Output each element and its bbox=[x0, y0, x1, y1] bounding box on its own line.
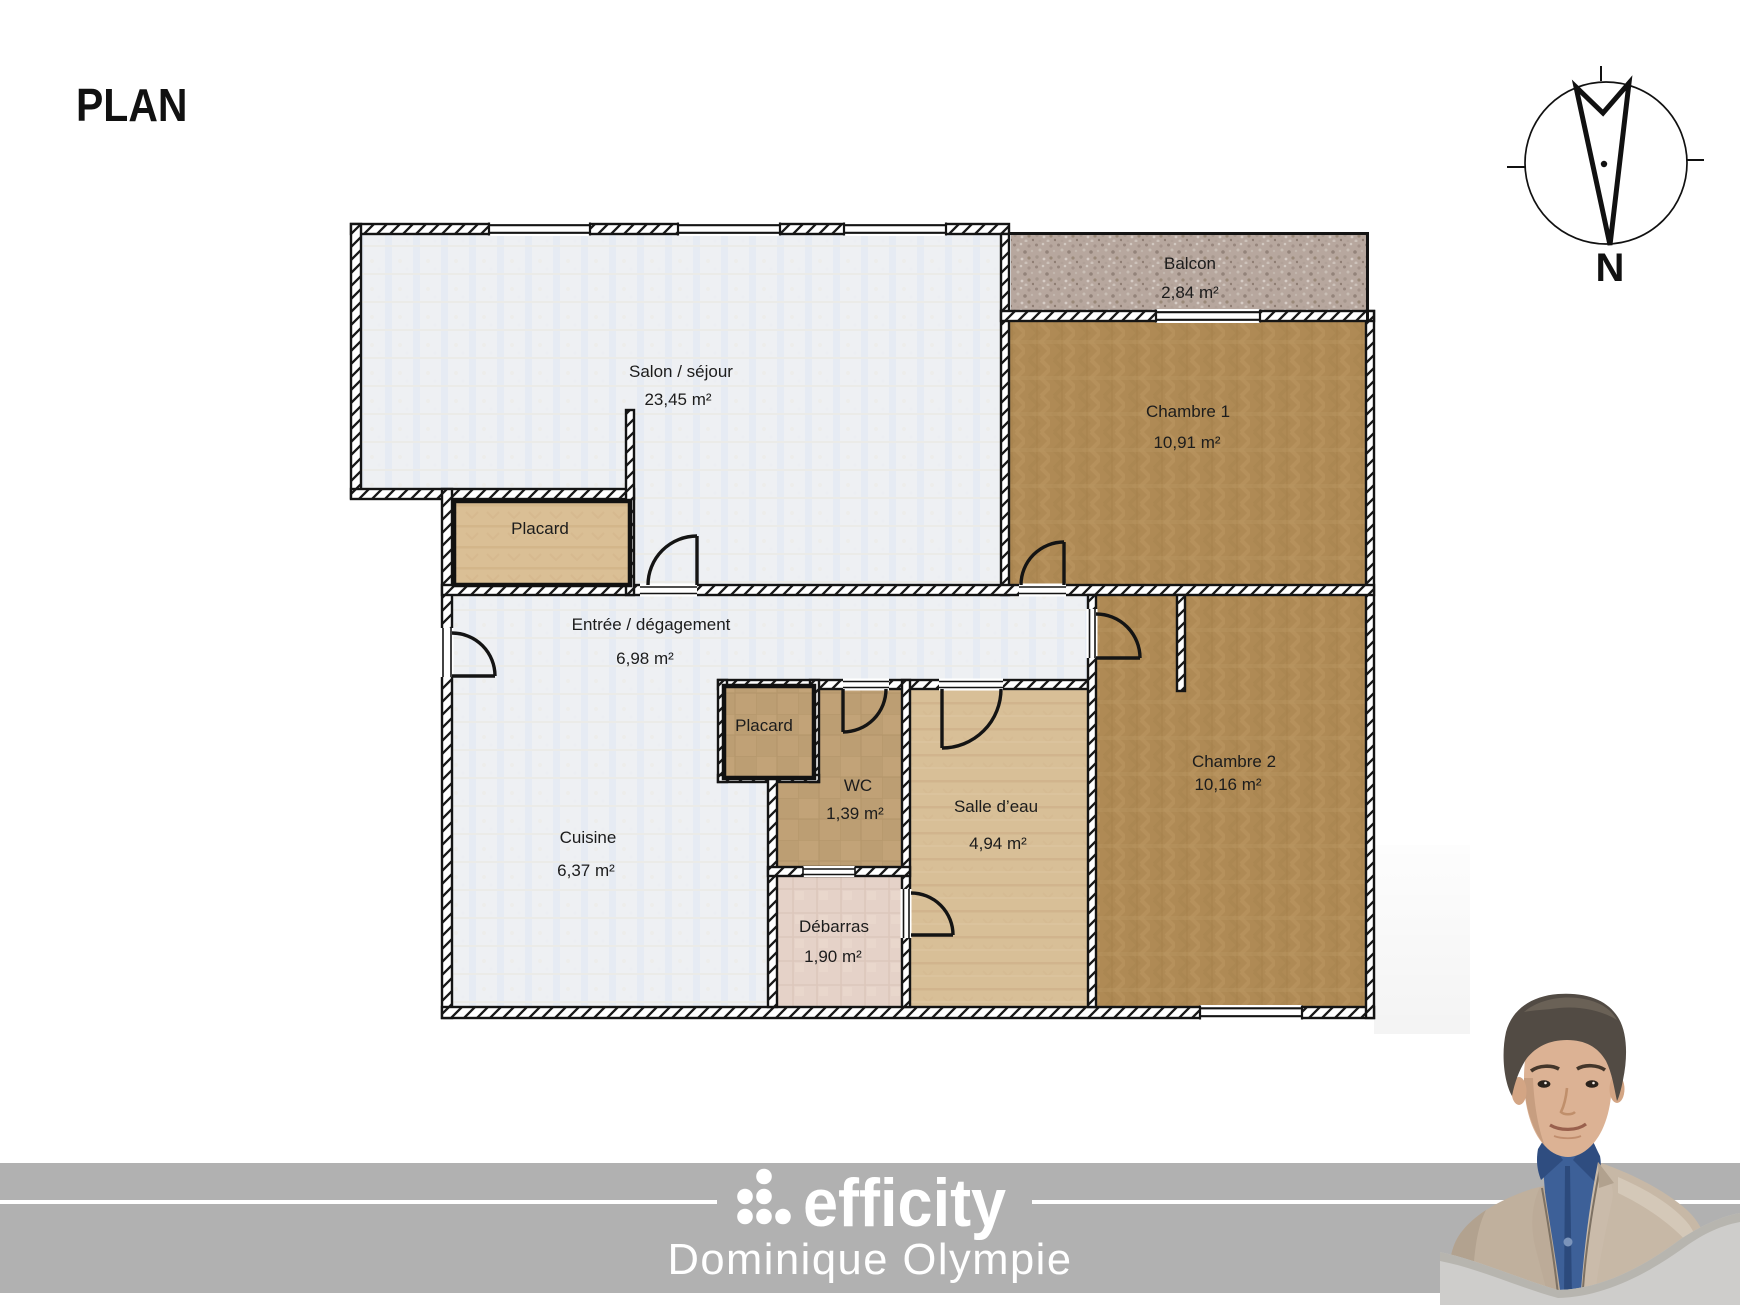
svg-text:efficity: efficity bbox=[803, 1165, 1007, 1241]
svg-text:Dominique Olympie: Dominique Olympie bbox=[667, 1236, 1072, 1284]
